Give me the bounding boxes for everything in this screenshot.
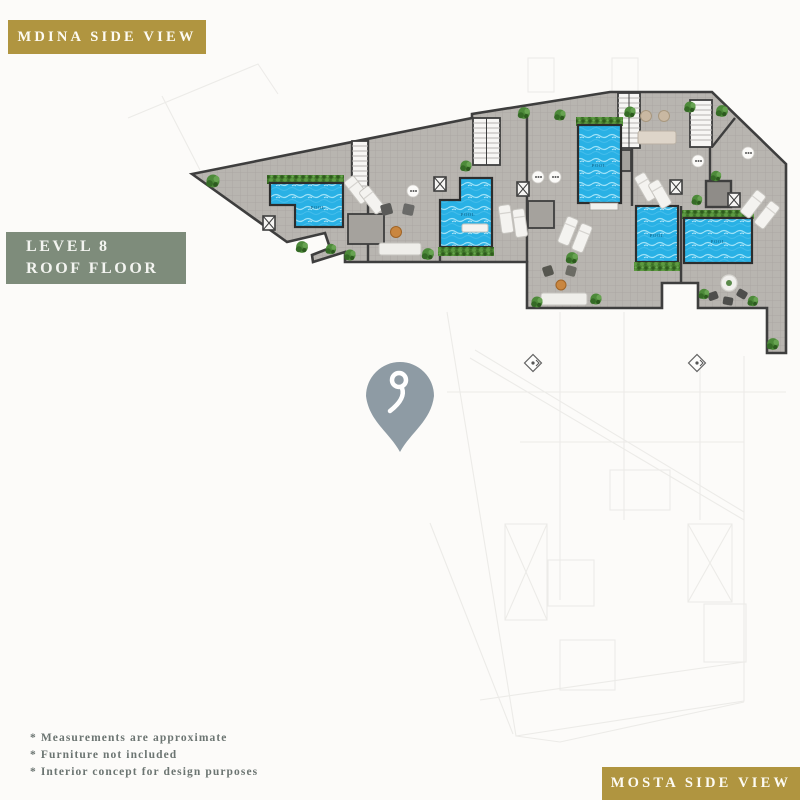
pool-label: POOL	[592, 163, 606, 168]
level-badge-line1: LEVEL 8	[26, 236, 186, 258]
footnote-line: * Measurements are approximate	[30, 732, 350, 744]
level-badge-line2: ROOF FLOOR	[26, 258, 186, 280]
footnote-line: * Furniture not included	[30, 749, 350, 761]
armchair-icon	[659, 111, 670, 122]
pool-label: POOL	[311, 205, 325, 210]
coffee-table-icon	[391, 227, 402, 238]
armchair-icon	[641, 111, 652, 122]
roof-pad	[528, 201, 554, 228]
armchair-icon	[402, 203, 415, 216]
coffee-table-icon	[556, 280, 566, 290]
skylight-icon	[517, 182, 529, 196]
badge-icon	[532, 171, 544, 183]
sofa-icon	[379, 243, 421, 255]
level-badge: LEVEL 8 ROOF FLOOR	[6, 232, 186, 284]
bench	[462, 224, 488, 232]
pool-step	[590, 203, 618, 210]
location-pin-icon[interactable]	[366, 362, 434, 452]
roof-pad	[348, 214, 384, 244]
mosta-side-view-label: MOSTA SIDE VIEW	[611, 775, 791, 792]
footnotes: * Measurements are approximate * Furnitu…	[30, 732, 350, 783]
staircase-icon	[473, 118, 500, 165]
badge-icon	[549, 171, 561, 183]
pool-label: POOL	[461, 212, 475, 217]
sofa-icon	[638, 131, 676, 144]
roof-floor-plan: POOL POOL POOL POOL POOL	[0, 0, 800, 800]
pool-hedge	[438, 247, 494, 256]
badge-icon	[407, 185, 419, 197]
badge-icon	[742, 147, 754, 159]
roof-terrace: POOL POOL POOL POOL POOL	[192, 92, 786, 353]
mdina-side-view-label: MDINA SIDE VIEW	[17, 29, 196, 46]
pool-hedge	[634, 262, 680, 271]
pool-label: POOL	[650, 233, 664, 238]
skylight-icon	[263, 216, 275, 230]
plant-icon	[325, 244, 336, 254]
diamond-marker-icon	[689, 355, 706, 372]
mdina-side-view-tag: MDINA SIDE VIEW	[8, 20, 206, 54]
survey-markers	[525, 355, 706, 372]
skylight-icon	[728, 193, 740, 207]
table-plant-icon	[726, 280, 732, 286]
footnote-line: * Interior concept for design purposes	[30, 766, 350, 778]
diamond-marker-icon	[525, 355, 542, 372]
skylight-icon	[434, 177, 446, 191]
plant-icon	[296, 241, 308, 253]
sofa-icon	[541, 293, 587, 305]
skylight-icon	[670, 180, 682, 194]
badge-icon	[692, 155, 704, 167]
pool-label: POOL	[711, 239, 725, 244]
mosta-side-view-tag: MOSTA SIDE VIEW	[602, 767, 800, 800]
